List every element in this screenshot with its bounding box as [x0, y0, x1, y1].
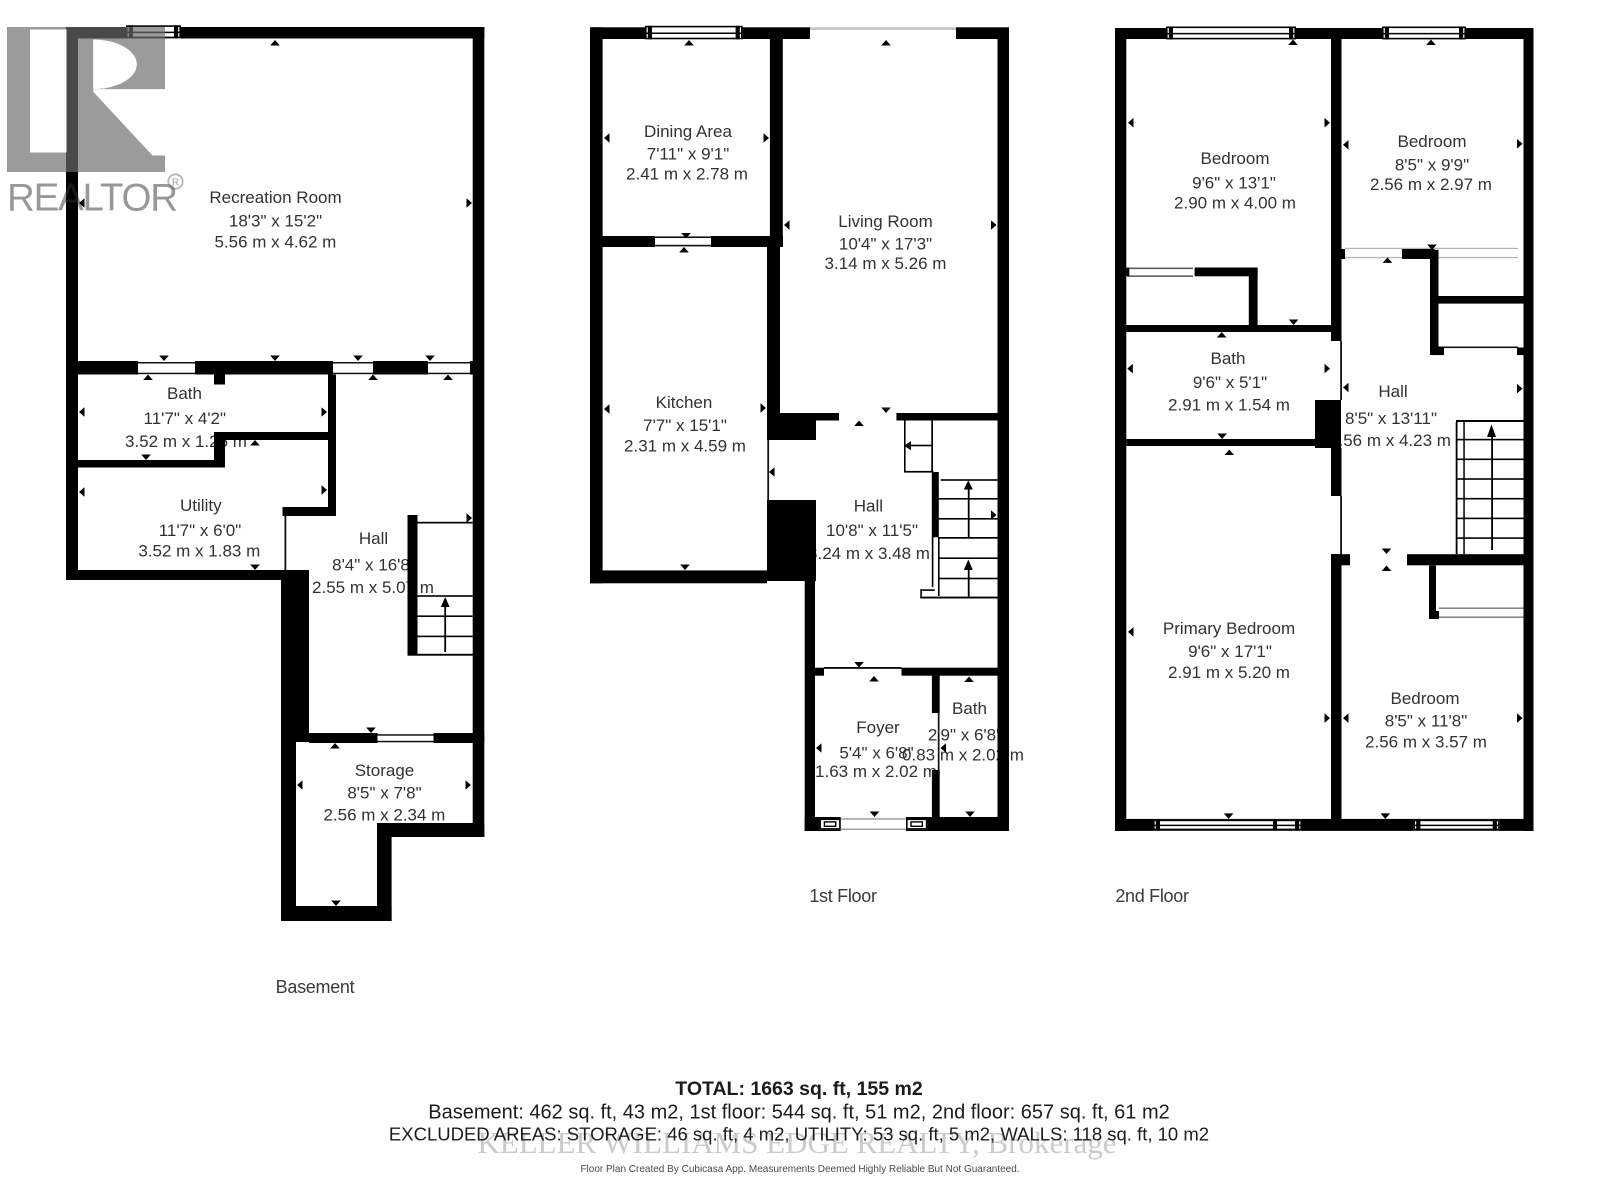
svg-text:Utility: Utility — [180, 496, 222, 515]
svg-text:1st Floor: 1st Floor — [809, 886, 877, 906]
svg-text:Bedroom: Bedroom — [1391, 689, 1460, 708]
svg-text:9'6" x 17'1": 9'6" x 17'1" — [1188, 642, 1272, 661]
svg-text:2.56 m x 2.97 m: 2.56 m x 2.97 m — [1370, 175, 1492, 194]
svg-text:8'5" x 9'9": 8'5" x 9'9" — [1395, 156, 1469, 175]
svg-text:2.31 m x 4.59 m: 2.31 m x 4.59 m — [624, 437, 746, 456]
svg-text:3.52 m x 1.83 m: 3.52 m x 1.83 m — [138, 542, 260, 561]
svg-text:7'7" x 15'1": 7'7" x 15'1" — [643, 416, 727, 435]
svg-text:2.91 m x 1.54 m: 2.91 m x 1.54 m — [1168, 396, 1290, 415]
svg-text:Dining Area: Dining Area — [644, 122, 732, 141]
svg-text:Kitchen: Kitchen — [656, 393, 713, 412]
svg-text:Hall: Hall — [359, 529, 388, 548]
svg-text:Hall: Hall — [854, 497, 883, 516]
svg-text:Basement: Basement — [276, 977, 355, 997]
svg-text:2.90 m x 4.00 m: 2.90 m x 4.00 m — [1174, 194, 1296, 213]
svg-text:2'9" x 6'8": 2'9" x 6'8" — [928, 726, 1002, 745]
svg-text:7'11" x 9'1": 7'11" x 9'1" — [647, 145, 730, 164]
svg-text:2.56 m x 3.57 m: 2.56 m x 3.57 m — [1365, 733, 1487, 752]
svg-text:5.56 m x 4.62 m: 5.56 m x 4.62 m — [214, 233, 336, 252]
svg-text:Primary Bedroom: Primary Bedroom — [1163, 619, 1295, 638]
svg-text:10'8" x 11'5": 10'8" x 11'5" — [826, 521, 918, 540]
svg-text:9'6" x 5'1": 9'6" x 5'1" — [1193, 373, 1267, 392]
svg-text:9'6" x 13'1": 9'6" x 13'1" — [1192, 174, 1276, 193]
svg-text:10'4" x 17'3": 10'4" x 17'3" — [839, 235, 932, 254]
svg-text:Recreation Room: Recreation Room — [209, 188, 341, 207]
svg-text:Bedroom: Bedroom — [1398, 132, 1467, 151]
svg-text:Basement: 462 sq. ft, 43 m2, 1: Basement: 462 sq. ft, 43 m2, 1st floor: … — [428, 1102, 1170, 1124]
svg-text:2.41 m x 2.78 m: 2.41 m x 2.78 m — [626, 165, 748, 184]
svg-text:3.14 m x 5.26 m: 3.14 m x 5.26 m — [825, 254, 947, 273]
svg-text:Floor Plan Created By Cubicasa: Floor Plan Created By Cubicasa App. Meas… — [580, 1164, 1019, 1175]
svg-text:11'7" x 4'2": 11'7" x 4'2" — [144, 409, 227, 428]
svg-text:2nd Floor: 2nd Floor — [1115, 886, 1189, 906]
svg-text:Living Room: Living Room — [838, 212, 933, 231]
svg-text:8'4" x 16'8": 8'4" x 16'8" — [332, 556, 416, 575]
svg-text:1.63 m x 2.02 m: 1.63 m x 2.02 m — [815, 762, 937, 781]
svg-text:Bath: Bath — [167, 384, 202, 403]
svg-text:Hall: Hall — [1378, 382, 1407, 401]
svg-text:R: R — [172, 178, 179, 189]
svg-text:REALTOR: REALTOR — [7, 177, 177, 220]
svg-text:Storage: Storage — [355, 761, 415, 780]
svg-text:2.91 m x 5.20 m: 2.91 m x 5.20 m — [1168, 663, 1290, 682]
svg-text:8'5" x 7'8": 8'5" x 7'8" — [347, 784, 421, 803]
svg-text:2.56 m x 4.23 m: 2.56 m x 4.23 m — [1329, 431, 1451, 450]
svg-text:Foyer: Foyer — [856, 718, 900, 737]
svg-text:18'3" x 15'2": 18'3" x 15'2" — [229, 212, 322, 231]
svg-text:2.56 m x 2.34 m: 2.56 m x 2.34 m — [323, 806, 445, 825]
svg-text:8'5" x 11'8": 8'5" x 11'8" — [1385, 712, 1468, 731]
svg-text:8'5" x 13'11": 8'5" x 13'11" — [1345, 409, 1437, 428]
svg-text:11'7" x 6'0": 11'7" x 6'0" — [159, 521, 242, 540]
svg-text:3.24 m x 3.48 m: 3.24 m x 3.48 m — [808, 544, 930, 563]
svg-text:Bath: Bath — [1211, 349, 1246, 368]
svg-text:Bath: Bath — [952, 699, 987, 718]
svg-text:Bedroom: Bedroom — [1201, 149, 1270, 168]
svg-text:TOTAL: 1663 sq. ft, 155 m2: TOTAL: 1663 sq. ft, 155 m2 — [675, 1078, 923, 1100]
svg-text:EXCLUDED AREAS: STORAGE: 46 sq: EXCLUDED AREAS: STORAGE: 46 sq. ft, 4 m2… — [389, 1124, 1209, 1145]
